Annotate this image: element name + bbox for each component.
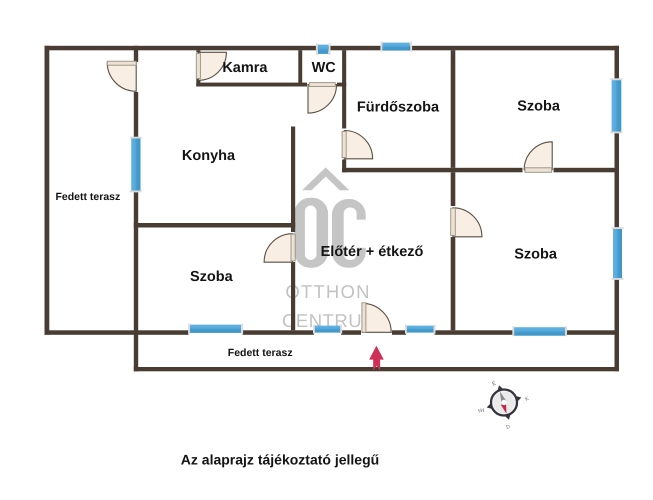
svg-text:Előtér + étkező: Előtér + étkező (321, 244, 424, 260)
svg-text:Fürdőszoba: Fürdőszoba (357, 100, 440, 116)
svg-text:Konyha: Konyha (182, 148, 236, 164)
svg-text:Ny: Ny (477, 407, 486, 415)
svg-text:WC: WC (312, 60, 337, 76)
svg-text:Kamra: Kamra (222, 60, 268, 76)
svg-text:K: K (524, 396, 530, 403)
svg-text:É: É (491, 379, 497, 387)
svg-text:Szoba: Szoba (190, 269, 234, 285)
svg-text:Az alaprajz tájékoztató jelleg: Az alaprajz tájékoztató jellegű (181, 452, 379, 468)
svg-text:Szoba: Szoba (514, 247, 558, 263)
svg-text:Szoba: Szoba (517, 99, 561, 115)
svg-text:Fedett terasz: Fedett terasz (228, 347, 293, 359)
svg-text:Fedett terasz: Fedett terasz (56, 191, 121, 203)
svg-text:OTTHON: OTTHON (285, 281, 370, 302)
svg-text:D: D (505, 424, 511, 431)
